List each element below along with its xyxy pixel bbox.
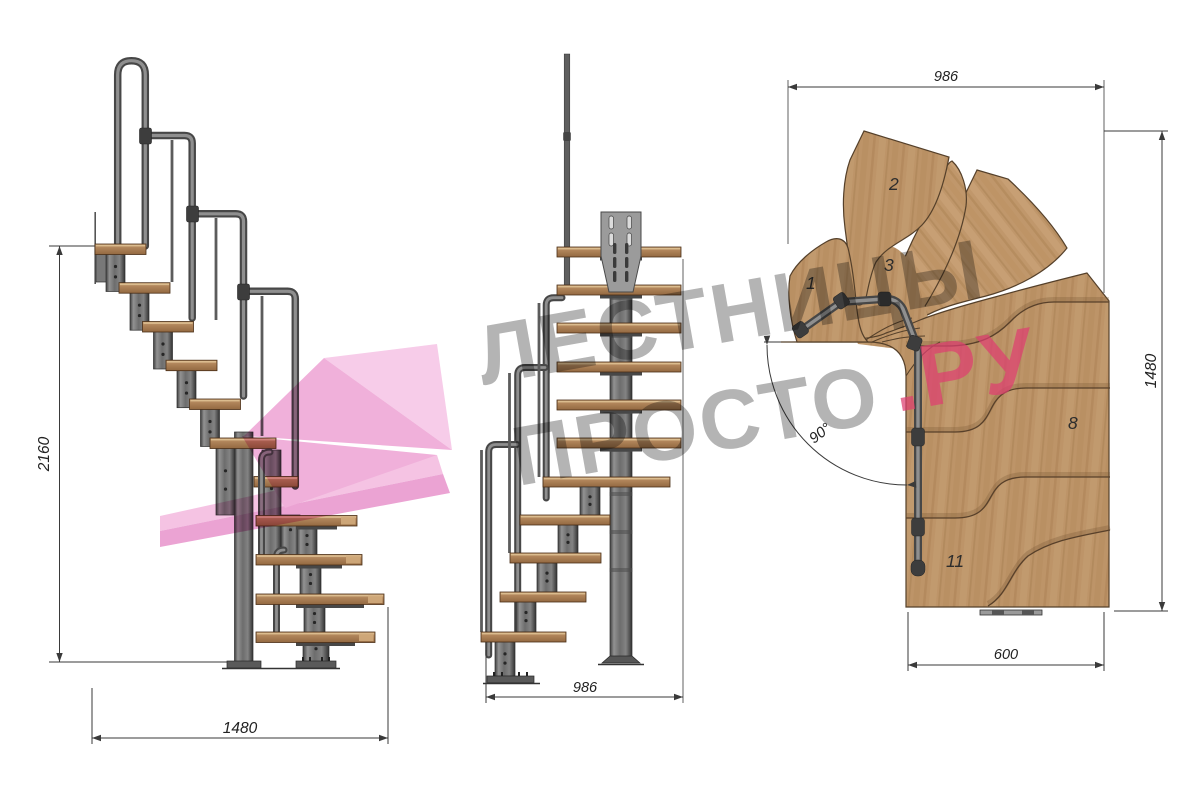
svg-text:2: 2 bbox=[888, 174, 899, 194]
svg-text:1480: 1480 bbox=[223, 720, 258, 737]
svg-text:2160: 2160 bbox=[36, 436, 53, 472]
svg-text:986: 986 bbox=[573, 680, 598, 696]
svg-text:600: 600 bbox=[994, 647, 1018, 663]
svg-text:1480: 1480 bbox=[1143, 353, 1160, 388]
svg-text:8: 8 bbox=[1068, 413, 1078, 433]
svg-text:986: 986 bbox=[934, 69, 959, 85]
svg-text:11: 11 bbox=[946, 551, 964, 571]
